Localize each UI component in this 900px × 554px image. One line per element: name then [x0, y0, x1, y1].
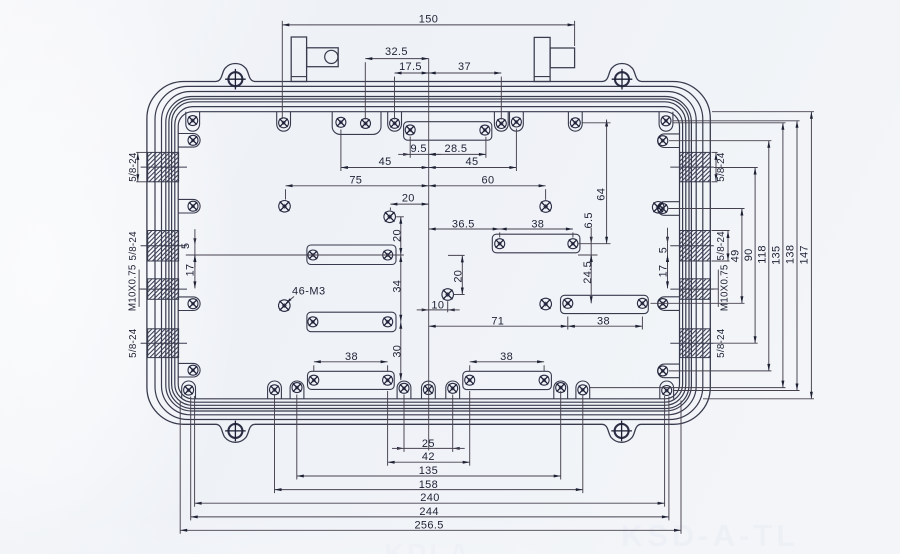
svg-text:5/8-24: 5/8-24 [716, 231, 727, 261]
svg-text:118: 118 [757, 245, 769, 264]
svg-text:150: 150 [419, 13, 438, 25]
svg-text:45: 45 [379, 156, 392, 168]
svg-text:38: 38 [500, 351, 513, 363]
svg-text:135: 135 [419, 465, 438, 477]
svg-text:9.5: 9.5 [411, 143, 427, 155]
svg-text:49: 49 [730, 249, 742, 262]
svg-text:30: 30 [392, 345, 404, 358]
svg-text:5: 5 [180, 243, 192, 249]
svg-text:KDLA: KDLA [385, 538, 472, 554]
svg-text:45: 45 [466, 156, 479, 168]
svg-text:17: 17 [658, 265, 670, 278]
svg-text:28.5: 28.5 [444, 143, 467, 155]
svg-text:256.5: 256.5 [414, 519, 443, 531]
svg-text:37: 37 [458, 61, 471, 73]
svg-text:46-M3: 46-M3 [292, 285, 326, 297]
svg-text:25: 25 [422, 438, 435, 450]
svg-text:M10X0.75: M10X0.75 [720, 264, 731, 311]
svg-text:90: 90 [743, 248, 755, 261]
svg-text:10: 10 [431, 300, 444, 312]
svg-text:60: 60 [482, 175, 495, 187]
svg-text:6.5: 6.5 [583, 212, 595, 228]
svg-text:17: 17 [184, 264, 196, 277]
svg-text:42: 42 [422, 451, 435, 463]
svg-text:71: 71 [491, 315, 504, 327]
svg-text:38: 38 [531, 218, 544, 230]
svg-text:135: 135 [771, 245, 783, 264]
svg-text:20: 20 [392, 229, 404, 242]
svg-text:5/8-24: 5/8-24 [128, 328, 139, 358]
svg-text:5/8-24: 5/8-24 [716, 152, 727, 182]
svg-text:5/8-24: 5/8-24 [128, 231, 139, 261]
svg-text:5: 5 [658, 247, 670, 253]
svg-text:32.5: 32.5 [385, 46, 408, 58]
svg-text:36.5: 36.5 [452, 218, 475, 230]
svg-text:240: 240 [420, 492, 439, 504]
svg-text:20: 20 [402, 193, 415, 205]
svg-text:17.5: 17.5 [399, 61, 422, 73]
svg-text:38: 38 [597, 315, 610, 327]
svg-text:75: 75 [349, 175, 362, 187]
svg-text:KSD-A-TL: KSD-A-TL [621, 518, 799, 553]
svg-text:38: 38 [345, 351, 358, 363]
svg-text:147: 147 [799, 245, 811, 264]
svg-text:34: 34 [392, 280, 404, 293]
svg-text:158: 158 [419, 479, 438, 491]
svg-text:24.5: 24.5 [582, 261, 594, 284]
svg-text:20: 20 [453, 270, 465, 283]
svg-text:138: 138 [784, 245, 796, 264]
svg-text:M10X0.75: M10X0.75 [127, 264, 138, 311]
svg-text:244: 244 [419, 506, 438, 518]
svg-text:64: 64 [595, 188, 607, 201]
